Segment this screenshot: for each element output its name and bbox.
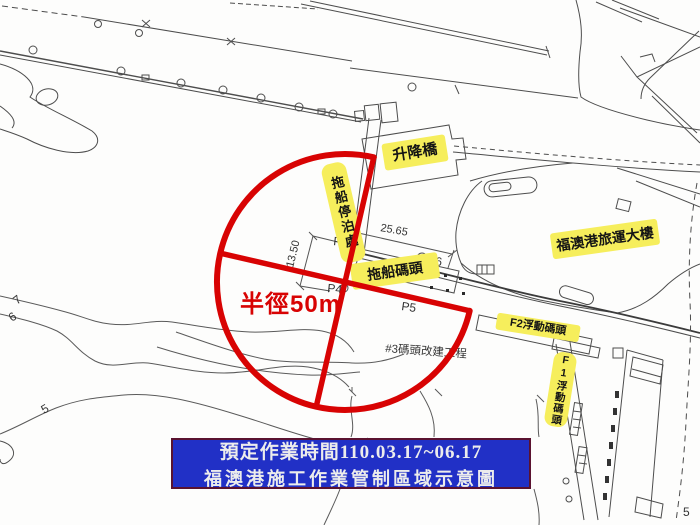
caption-title: 福澳港施工作業管制區域示意圖 bbox=[204, 465, 498, 491]
point-p5-label: P5 bbox=[401, 299, 418, 315]
radius-annotation: 半徑50m bbox=[240, 284, 341, 319]
contour-lines bbox=[0, 296, 544, 525]
coastline bbox=[0, 64, 98, 464]
port-site-plan: 25.65 13.50 P3 P4 P5 P6 #3碼頭改建工程 7 6 5 5… bbox=[0, 0, 700, 525]
contour-5-label: 5 bbox=[39, 401, 52, 417]
dim-width-text: 13.50 bbox=[284, 239, 302, 269]
contour-5-right-label: 5 bbox=[683, 505, 690, 519]
dim-length-text: 25.65 bbox=[379, 222, 408, 239]
road-topright bbox=[230, 0, 700, 143]
project-note: #3碼頭改建工程 bbox=[385, 341, 468, 361]
caption-schedule: 預定作業時間110.03.17~06.17 bbox=[220, 437, 483, 464]
contour-6-label: 6 bbox=[6, 309, 20, 324]
contour-7-label: 7 bbox=[10, 292, 24, 307]
road-topleft bbox=[0, 6, 363, 122]
caption-banner: 預定作業時間110.03.17~06.17 福澳港施工作業管制區域示意圖 bbox=[171, 438, 531, 489]
